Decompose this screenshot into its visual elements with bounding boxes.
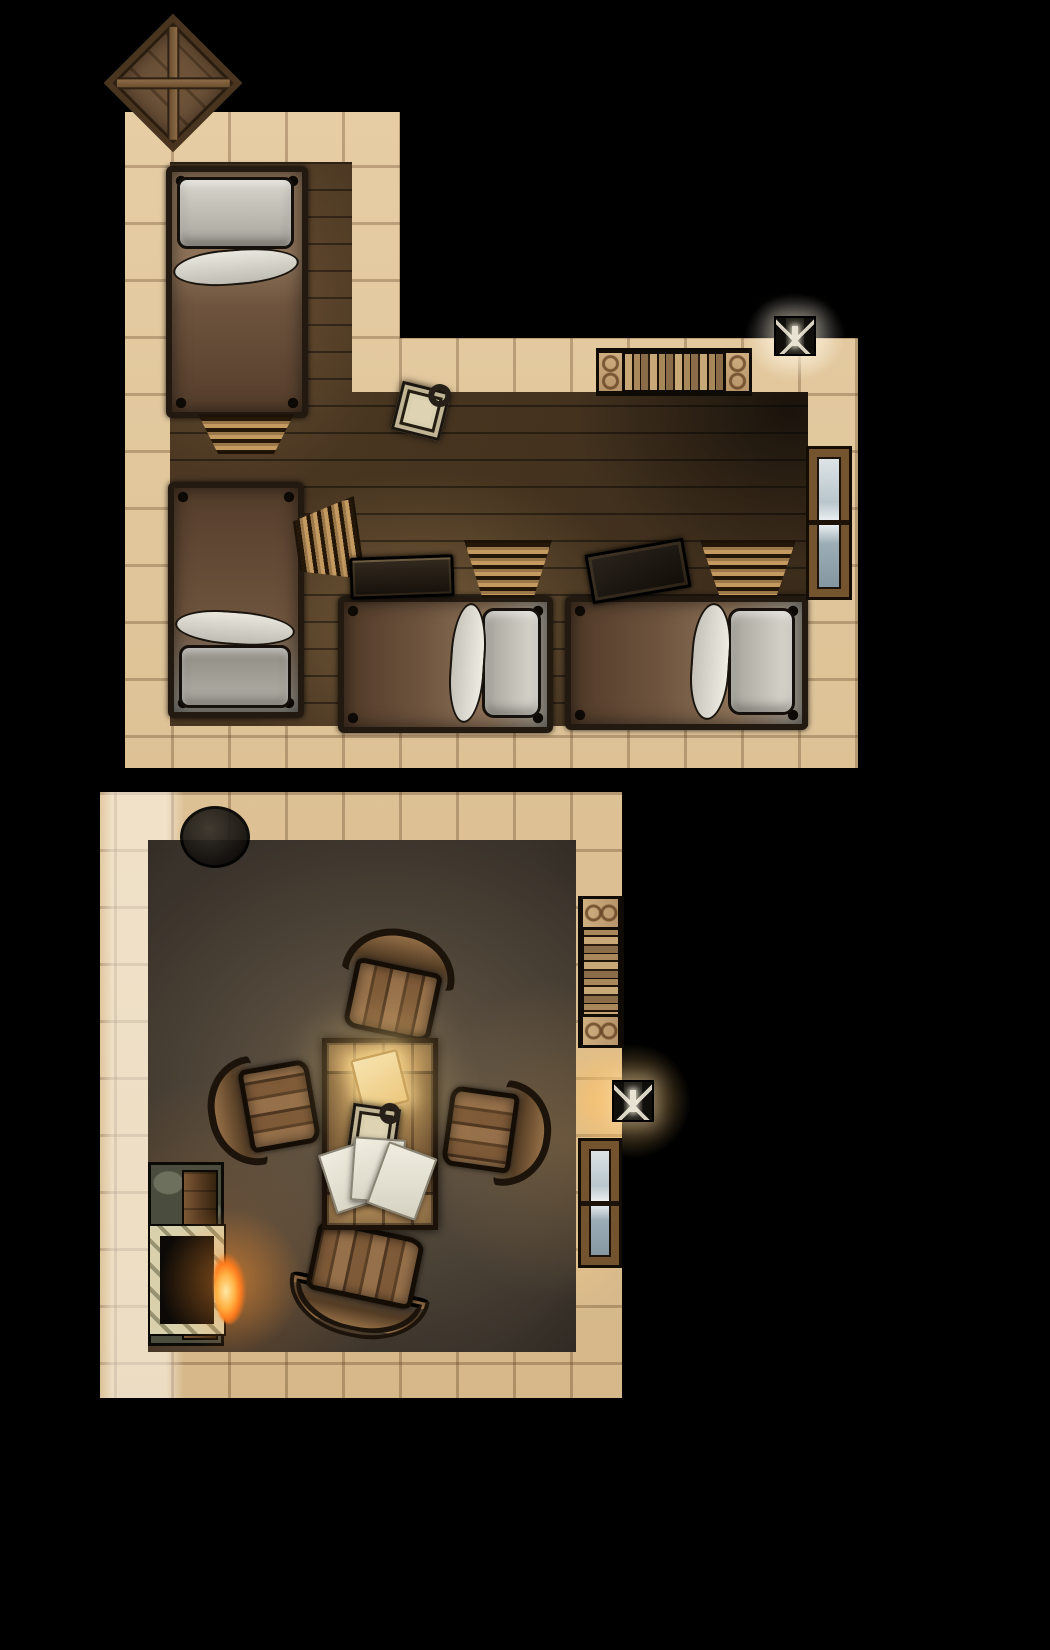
- wall-bookshelf-east: [578, 896, 624, 1048]
- cauldron: [180, 806, 250, 868]
- bed-mid-left: [168, 482, 304, 718]
- window-east: [806, 446, 852, 600]
- bed-top-left: [166, 166, 308, 418]
- wall-bookshelf-north: [596, 348, 752, 396]
- bed-south-east: [565, 596, 808, 730]
- map-stage: [0, 0, 1050, 1650]
- fireplace-hearth: [150, 1226, 224, 1334]
- chair-west: [213, 1051, 325, 1164]
- wall-torch-east: [612, 1080, 654, 1122]
- chair-east: [438, 1078, 544, 1184]
- wall-torch-north: [774, 316, 816, 356]
- bed-south-center: [338, 596, 553, 733]
- window-south-east: [578, 1138, 622, 1268]
- storage-chest: [349, 554, 454, 600]
- chair-north: [335, 932, 455, 1047]
